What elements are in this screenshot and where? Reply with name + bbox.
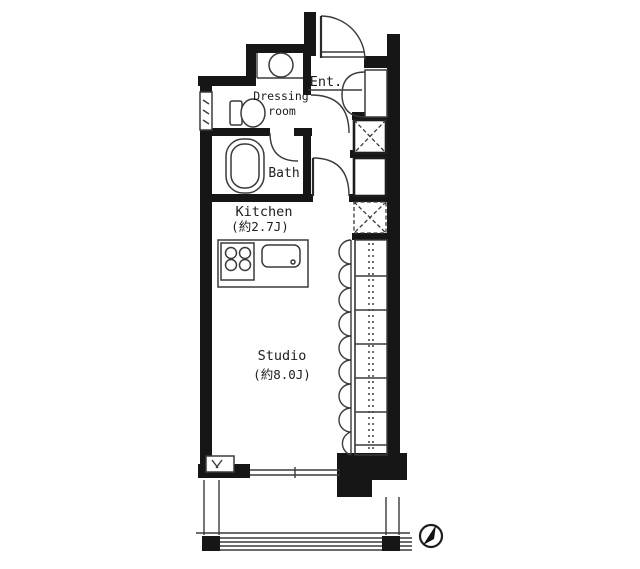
wall-entrance-left-jamb (304, 12, 316, 56)
toilet-bowl-icon (241, 99, 265, 127)
washer-space-box (354, 158, 386, 196)
bath-room: Bath (226, 133, 300, 193)
stove-burner-icon (240, 260, 251, 271)
dressing-room-label-line1: Dressing (253, 89, 308, 103)
entrance-area: Ent. (308, 16, 387, 133)
wall-hall-lower (303, 133, 311, 194)
bath-door-arc (270, 133, 298, 161)
bath-label: Bath (268, 166, 299, 181)
hall-door-arc (311, 95, 349, 133)
balcony-railing-lines (204, 538, 412, 550)
toilet-tank-icon (230, 101, 242, 125)
balcony-post-left (202, 536, 220, 551)
studio-label: Studio (258, 348, 307, 364)
pipe-space-small-box (206, 456, 234, 472)
wall-bottom-right-mass (337, 453, 407, 497)
wall-left (200, 84, 212, 478)
closet-accordion-doors (339, 240, 351, 455)
service-boxes (354, 120, 386, 233)
floor-plan: Ent. Dressing room Bath (0, 0, 640, 569)
shoe-cabinet (365, 70, 387, 117)
wall-bath-bottom (200, 194, 313, 202)
kitchen-size-label: (約2.7J) (231, 219, 289, 234)
studio-door-arc (313, 158, 349, 196)
closet-shelf-lines (355, 276, 387, 445)
stove-burner-icon (226, 260, 237, 271)
balcony (196, 480, 412, 551)
wall-dressing-bath-left (212, 128, 270, 136)
kitchen-label: Kitchen (236, 204, 293, 220)
shoe-cabinet-door-arc-top (342, 72, 365, 95)
bathtub-inner-icon (231, 144, 259, 188)
balcony-post-right (382, 536, 400, 551)
washbasin-icon (269, 53, 293, 77)
floor-plan-canvas: Ent. Dressing room Bath (0, 0, 640, 569)
compass-north-icon (420, 525, 442, 547)
wall-closet-top (352, 233, 388, 240)
dressing-room-label-line2: room (268, 104, 296, 118)
closet-interior (355, 240, 387, 455)
entrance-door-arc (321, 16, 365, 60)
entrance-label: Ent. (310, 74, 343, 90)
studio-size-label: (約8.0J) (253, 367, 311, 382)
sink-drain-icon (291, 260, 295, 264)
stove-burner-icon (240, 248, 251, 259)
wall-right (387, 34, 400, 455)
window-left (200, 92, 212, 130)
stove-burner-icon (226, 248, 237, 259)
